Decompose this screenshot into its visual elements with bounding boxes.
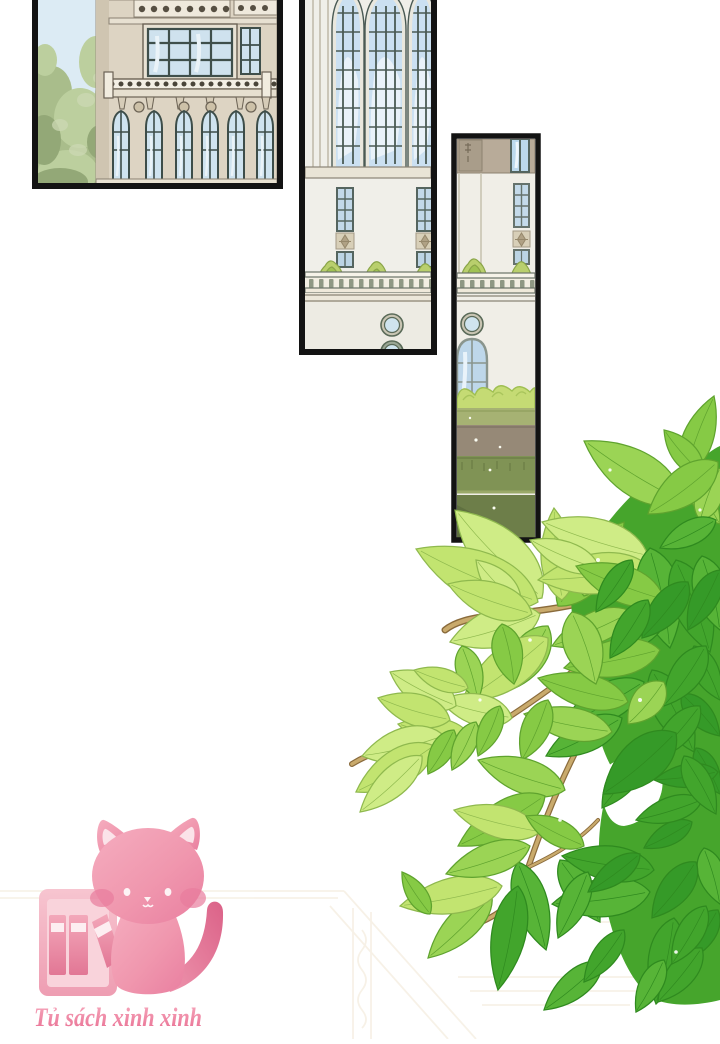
- svg-text:Tủ sách xinh xinh: Tủ sách xinh xinh: [34, 1003, 202, 1032]
